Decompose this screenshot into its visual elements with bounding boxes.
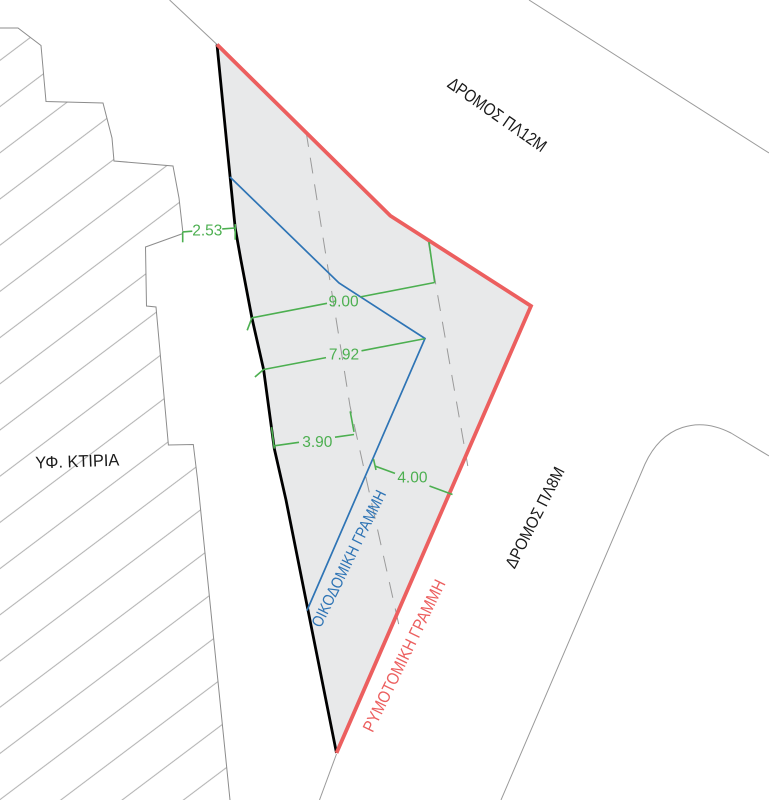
svg-text:7.92: 7.92: [329, 347, 359, 364]
svg-text:3.90: 3.90: [302, 434, 333, 451]
svg-text:ΔΡΟΜΟΣ ΠΛ12Μ: ΔΡΟΜΟΣ ΠΛ12Μ: [444, 73, 550, 156]
svg-text:ΔΡΟΜΟΣ ΠΛ8Μ: ΔΡΟΜΟΣ ΠΛ8Μ: [502, 464, 568, 571]
svg-text:4.00: 4.00: [397, 470, 428, 487]
svg-text:2.53: 2.53: [192, 223, 222, 240]
svg-text:ΥΦ. ΚΤΙΡΙΑ: ΥΦ. ΚΤΙΡΙΑ: [35, 451, 120, 473]
svg-text:9.00: 9.00: [329, 293, 360, 310]
